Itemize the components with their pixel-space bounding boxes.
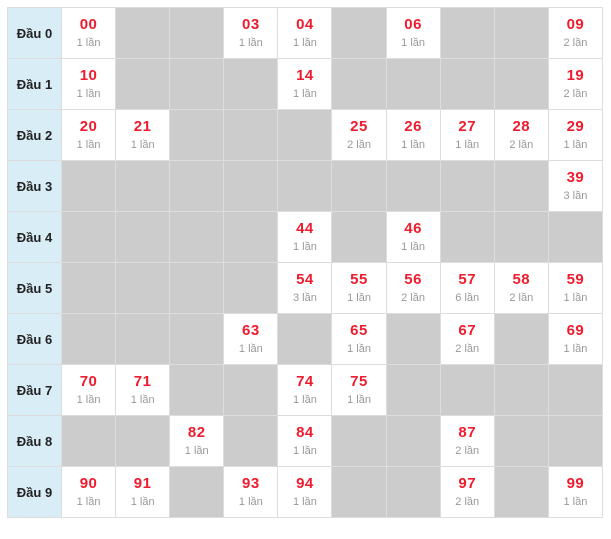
empty-cell [332, 8, 386, 59]
number-count: 1 lần [441, 140, 494, 151]
number-value: 56 [387, 272, 440, 287]
empty-cell [224, 212, 278, 263]
empty-cell [441, 212, 495, 263]
number-count: 1 lần [549, 497, 602, 508]
empty-cell [332, 59, 386, 110]
empty-cell [332, 416, 386, 467]
number-count: 1 lần [549, 344, 602, 355]
empty-cell [495, 212, 549, 263]
number-cell-09: 092 lần [549, 8, 603, 59]
number-cell-84: 841 lần [278, 416, 332, 467]
table-row: Đầu 1101 lần141 lần192 lần [8, 59, 603, 110]
empty-cell [62, 314, 116, 365]
empty-cell [62, 263, 116, 314]
number-value: 26 [387, 119, 440, 134]
number-value: 44 [278, 221, 331, 236]
number-value: 04 [278, 17, 331, 32]
number-value: 99 [549, 476, 602, 491]
number-cell-93: 931 lần [224, 467, 278, 518]
empty-cell [495, 416, 549, 467]
number-cell-82: 821 lần [170, 416, 224, 467]
empty-cell [441, 59, 495, 110]
empty-cell [332, 212, 386, 263]
number-value: 91 [116, 476, 169, 491]
number-count: 1 lần [332, 293, 385, 304]
number-cell-97: 972 lần [441, 467, 495, 518]
number-count: 1 lần [278, 89, 331, 100]
number-count: 1 lần [62, 38, 115, 49]
number-count: 1 lần [224, 38, 277, 49]
number-count: 2 lần [441, 344, 494, 355]
number-cell-75: 751 lần [332, 365, 386, 416]
number-count: 2 lần [495, 293, 548, 304]
empty-cell [224, 59, 278, 110]
number-value: 90 [62, 476, 115, 491]
number-value: 10 [62, 68, 115, 83]
number-count: 1 lần [170, 446, 223, 457]
number-value: 09 [549, 17, 602, 32]
empty-cell [495, 314, 549, 365]
number-cell-57: 576 lần [441, 263, 495, 314]
row-label: Đầu 7 [8, 365, 62, 416]
number-cell-56: 562 lần [387, 263, 441, 314]
number-cell-69: 691 lần [549, 314, 603, 365]
row-label: Đầu 8 [8, 416, 62, 467]
number-value: 74 [278, 374, 331, 389]
empty-cell [116, 8, 170, 59]
empty-cell [332, 161, 386, 212]
number-value: 84 [278, 425, 331, 440]
number-value: 14 [278, 68, 331, 83]
number-cell-67: 672 lần [441, 314, 495, 365]
number-cell-06: 061 lần [387, 8, 441, 59]
empty-cell [62, 416, 116, 467]
number-count: 6 lần [441, 293, 494, 304]
number-value: 21 [116, 119, 169, 134]
number-cell-20: 201 lần [62, 110, 116, 161]
empty-cell [387, 161, 441, 212]
empty-cell [170, 314, 224, 365]
number-count: 1 lần [549, 140, 602, 151]
number-count: 1 lần [278, 242, 331, 253]
empty-cell [387, 314, 441, 365]
number-count: 1 lần [387, 140, 440, 151]
number-count: 2 lần [441, 497, 494, 508]
number-value: 58 [495, 272, 548, 287]
number-cell-71: 711 lần [116, 365, 170, 416]
row-label: Đầu 5 [8, 263, 62, 314]
number-cell-87: 872 lần [441, 416, 495, 467]
number-value: 70 [62, 374, 115, 389]
number-cell-10: 101 lần [62, 59, 116, 110]
number-cell-21: 211 lần [116, 110, 170, 161]
empty-cell [170, 59, 224, 110]
number-cell-25: 252 lần [332, 110, 386, 161]
table-row: Đầu 0001 lần031 lần041 lần061 lần092 lần [8, 8, 603, 59]
empty-cell [62, 161, 116, 212]
number-value: 94 [278, 476, 331, 491]
number-count: 1 lần [224, 344, 277, 355]
table-row: Đầu 3393 lần [8, 161, 603, 212]
number-count: 2 lần [332, 140, 385, 151]
table-row: Đầu 5543 lần551 lần562 lần576 lần582 lần… [8, 263, 603, 314]
number-value: 63 [224, 323, 277, 338]
empty-cell [224, 161, 278, 212]
empty-cell [116, 161, 170, 212]
table-row: Đầu 4441 lần461 lần [8, 212, 603, 263]
number-value: 25 [332, 119, 385, 134]
number-count: 1 lần [278, 446, 331, 457]
number-value: 20 [62, 119, 115, 134]
number-cell-26: 261 lần [387, 110, 441, 161]
table-row: Đầu 8821 lần841 lần872 lần [8, 416, 603, 467]
number-count: 1 lần [62, 140, 115, 151]
number-cell-58: 582 lần [495, 263, 549, 314]
number-value: 93 [224, 476, 277, 491]
number-value: 28 [495, 119, 548, 134]
table-row: Đầu 9901 lần911 lần931 lần941 lần972 lần… [8, 467, 603, 518]
number-cell-94: 941 lần [278, 467, 332, 518]
empty-cell [224, 416, 278, 467]
row-label: Đầu 6 [8, 314, 62, 365]
number-cell-46: 461 lần [387, 212, 441, 263]
number-count: 2 lần [549, 38, 602, 49]
empty-cell [278, 161, 332, 212]
number-value: 00 [62, 17, 115, 32]
empty-cell [332, 467, 386, 518]
number-count: 1 lần [62, 395, 115, 406]
empty-cell [170, 8, 224, 59]
empty-cell [441, 161, 495, 212]
number-cell-91: 911 lần [116, 467, 170, 518]
number-cell-54: 543 lần [278, 263, 332, 314]
empty-cell [116, 59, 170, 110]
number-count: 3 lần [549, 191, 602, 202]
number-value: 57 [441, 272, 494, 287]
empty-cell [495, 8, 549, 59]
number-value: 97 [441, 476, 494, 491]
row-label: Đầu 4 [8, 212, 62, 263]
number-value: 82 [170, 425, 223, 440]
number-count: 1 lần [224, 497, 277, 508]
number-count: 1 lần [278, 395, 331, 406]
number-cell-39: 393 lần [549, 161, 603, 212]
number-value: 19 [549, 68, 602, 83]
empty-cell [62, 212, 116, 263]
empty-cell [278, 314, 332, 365]
number-value: 29 [549, 119, 602, 134]
empty-cell [224, 365, 278, 416]
number-count: 1 lần [116, 395, 169, 406]
empty-cell [387, 416, 441, 467]
number-cell-00: 001 lần [62, 8, 116, 59]
number-cell-65: 651 lần [332, 314, 386, 365]
number-cell-03: 031 lần [224, 8, 278, 59]
empty-cell [278, 110, 332, 161]
empty-cell [170, 110, 224, 161]
number-value: 69 [549, 323, 602, 338]
number-count: 1 lần [549, 293, 602, 304]
number-count: 1 lần [387, 38, 440, 49]
empty-cell [441, 365, 495, 416]
number-count: 1 lần [332, 395, 385, 406]
empty-cell [495, 161, 549, 212]
empty-cell [170, 161, 224, 212]
empty-cell [224, 110, 278, 161]
number-value: 71 [116, 374, 169, 389]
number-cell-70: 701 lần [62, 365, 116, 416]
number-value: 67 [441, 323, 494, 338]
row-label: Đầu 0 [8, 8, 62, 59]
number-count: 1 lần [332, 344, 385, 355]
number-value: 27 [441, 119, 494, 134]
number-cell-59: 591 lần [549, 263, 603, 314]
table-row: Đầu 7701 lần711 lần741 lần751 lần [8, 365, 603, 416]
empty-cell [224, 263, 278, 314]
empty-cell [495, 467, 549, 518]
number-value: 75 [332, 374, 385, 389]
number-count: 2 lần [495, 140, 548, 151]
row-label: Đầu 2 [8, 110, 62, 161]
empty-cell [116, 212, 170, 263]
number-count: 1 lần [278, 38, 331, 49]
empty-cell [441, 8, 495, 59]
number-value: 65 [332, 323, 385, 338]
empty-cell [495, 365, 549, 416]
empty-cell [387, 467, 441, 518]
number-cell-14: 141 lần [278, 59, 332, 110]
number-value: 46 [387, 221, 440, 236]
empty-cell [549, 365, 603, 416]
number-value: 59 [549, 272, 602, 287]
empty-cell [170, 365, 224, 416]
empty-cell [387, 59, 441, 110]
number-count: 1 lần [116, 497, 169, 508]
row-label: Đầu 3 [8, 161, 62, 212]
empty-cell [495, 59, 549, 110]
number-count: 3 lần [278, 293, 331, 304]
empty-cell [170, 467, 224, 518]
row-label: Đầu 9 [8, 467, 62, 518]
number-count: 2 lần [441, 446, 494, 457]
number-cell-04: 041 lần [278, 8, 332, 59]
number-value: 55 [332, 272, 385, 287]
number-cell-29: 291 lần [549, 110, 603, 161]
number-cell-44: 441 lần [278, 212, 332, 263]
number-count: 1 lần [387, 242, 440, 253]
row-label: Đầu 1 [8, 59, 62, 110]
empty-cell [170, 212, 224, 263]
number-value: 54 [278, 272, 331, 287]
number-value: 39 [549, 170, 602, 185]
number-count: 2 lần [549, 89, 602, 100]
table-row: Đầu 6631 lần651 lần672 lần691 lần [8, 314, 603, 365]
empty-cell [116, 263, 170, 314]
number-count: 1 lần [62, 89, 115, 100]
number-count: 1 lần [116, 140, 169, 151]
number-value: 06 [387, 17, 440, 32]
number-cell-74: 741 lần [278, 365, 332, 416]
empty-cell [170, 263, 224, 314]
empty-cell [387, 365, 441, 416]
frequency-table-body: Đầu 0001 lần031 lần041 lần061 lần092 lần… [8, 8, 603, 518]
number-cell-63: 631 lần [224, 314, 278, 365]
empty-cell [549, 416, 603, 467]
number-cell-99: 991 lần [549, 467, 603, 518]
empty-cell [116, 416, 170, 467]
number-cell-19: 192 lần [549, 59, 603, 110]
empty-cell [116, 314, 170, 365]
number-value: 03 [224, 17, 277, 32]
frequency-table: Đầu 0001 lần031 lần041 lần061 lần092 lần… [7, 7, 603, 518]
number-cell-28: 282 lần [495, 110, 549, 161]
number-count: 1 lần [278, 497, 331, 508]
number-cell-90: 901 lần [62, 467, 116, 518]
page-wrapper: Đầu 0001 lần031 lần041 lần061 lần092 lần… [0, 0, 611, 525]
number-value: 87 [441, 425, 494, 440]
number-cell-27: 271 lần [441, 110, 495, 161]
table-row: Đầu 2201 lần211 lần252 lần261 lần271 lần… [8, 110, 603, 161]
empty-cell [549, 212, 603, 263]
number-count: 1 lần [62, 497, 115, 508]
number-count: 2 lần [387, 293, 440, 304]
number-cell-55: 551 lần [332, 263, 386, 314]
